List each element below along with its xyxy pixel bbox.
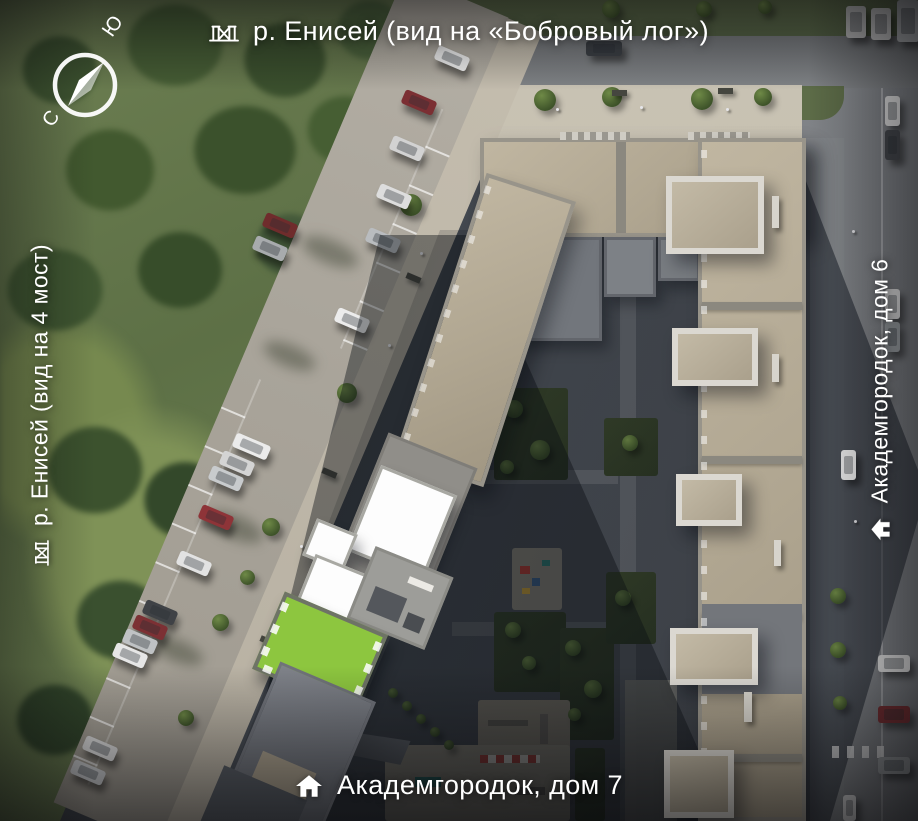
label-text: Академгородок, дом 6 <box>867 259 894 504</box>
street-lamp <box>300 545 303 548</box>
tree <box>691 88 713 110</box>
compass: Ю С <box>34 8 144 143</box>
bridge-icon <box>30 540 50 566</box>
tree <box>240 570 255 585</box>
street-lamp <box>556 108 559 111</box>
roof-box <box>772 196 779 228</box>
roof-structure <box>366 586 407 623</box>
roof-structure <box>407 576 434 592</box>
building-section-roof <box>676 474 742 526</box>
compass-north-label: С <box>38 106 64 130</box>
label-text: р. Енисей (вид на «Бобровый лог») <box>253 16 709 47</box>
roof-box <box>772 354 779 382</box>
label-river-yenisei-4th-bridge: р. Енисей (вид на 4 мост) <box>27 244 54 566</box>
site-plan-canvas: р. Енисей (вид на «Бобровый лог») р. Ени… <box>0 0 918 821</box>
roof-structure <box>402 612 425 634</box>
lower-roof <box>604 237 656 297</box>
label-akademgorodok-dom-7: Академгородок, дом 7 <box>0 770 918 801</box>
bridge-icon <box>209 21 239 43</box>
house-icon <box>870 517 890 541</box>
street-lamp <box>640 106 643 109</box>
tree <box>262 518 280 536</box>
building-section-roof <box>672 328 758 386</box>
tree <box>212 614 229 631</box>
section-gap <box>702 302 802 310</box>
bench <box>612 90 627 96</box>
roof-stairs <box>560 132 630 140</box>
street-lamp <box>726 108 729 111</box>
roof-box <box>774 540 781 566</box>
section-gap <box>616 142 626 233</box>
compass-south-label: Ю <box>98 12 128 41</box>
tree <box>754 88 772 106</box>
building-section-roof <box>666 176 764 254</box>
section-gap <box>702 456 802 464</box>
right-vignette <box>808 0 918 821</box>
tree <box>534 89 556 111</box>
label-text: р. Енисей (вид на 4 мост) <box>27 244 54 526</box>
house-icon <box>295 774 323 798</box>
label-akademgorodok-dom-6: Академгородок, дом 6 <box>867 259 894 542</box>
label-text: Академгородок, дом 7 <box>337 770 623 801</box>
